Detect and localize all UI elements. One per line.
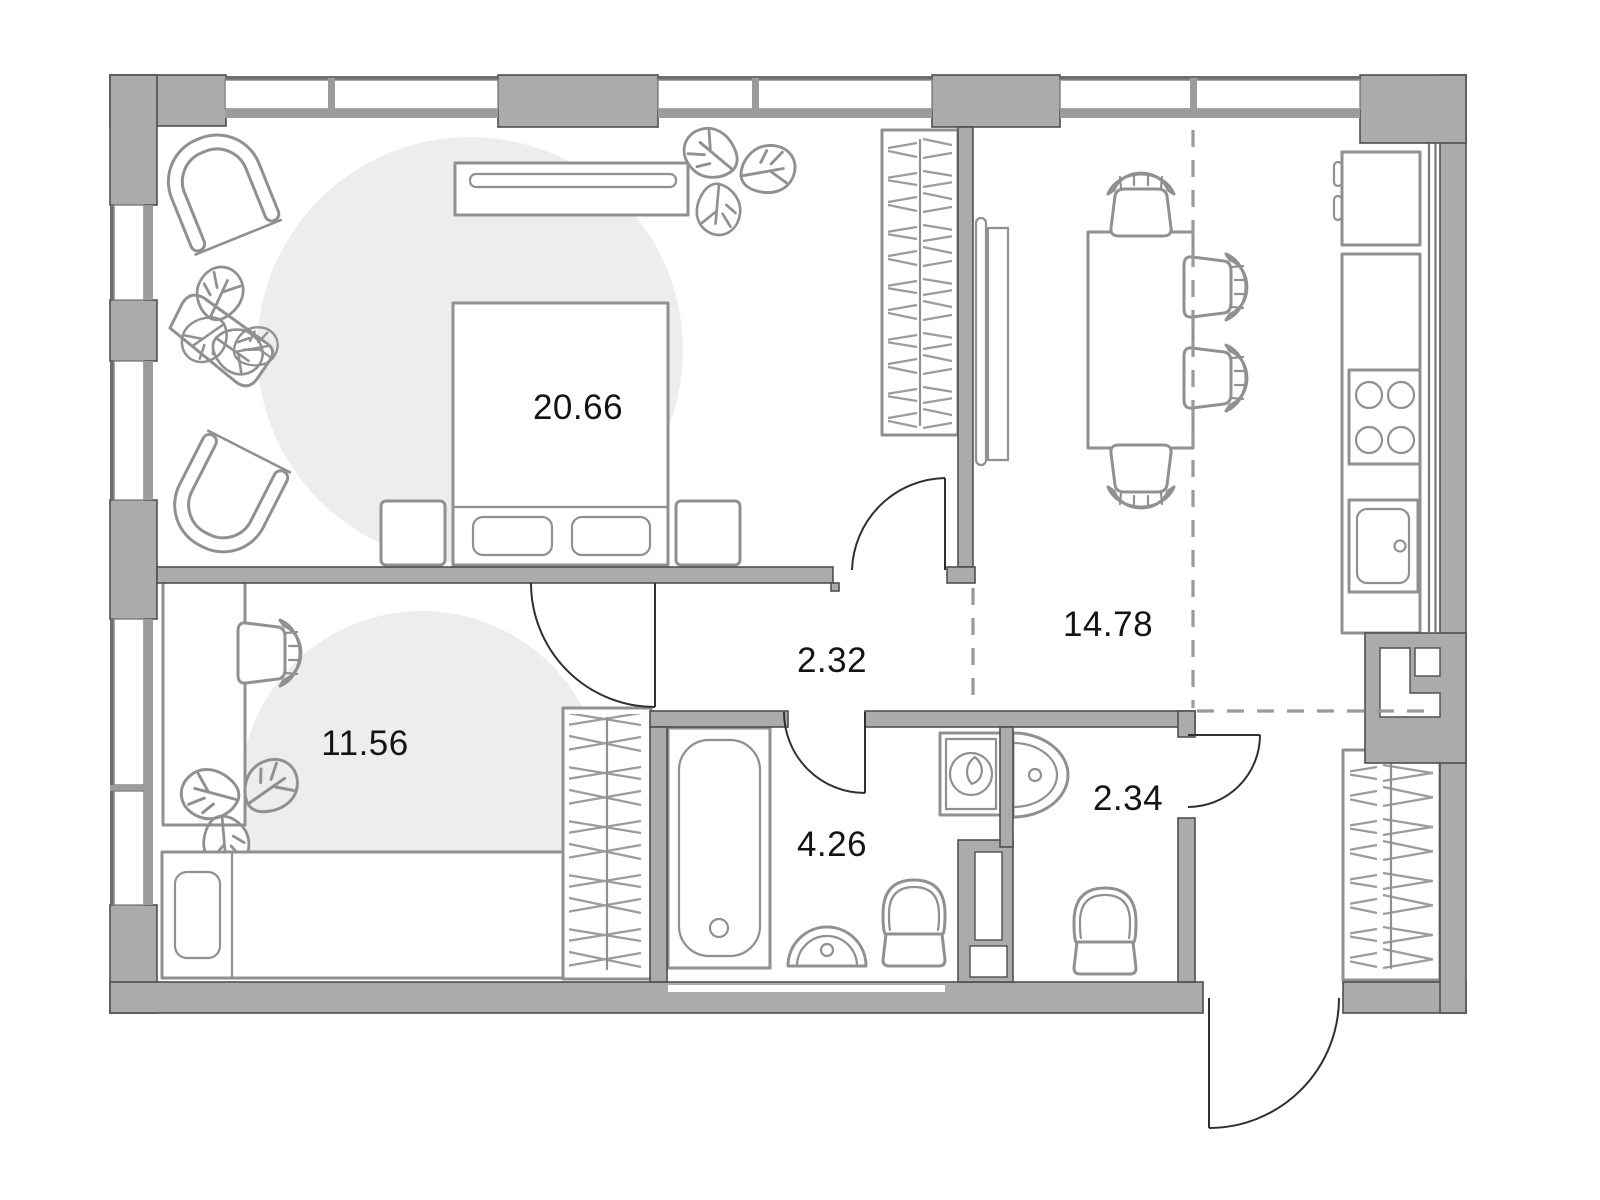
armchair-top-icon — [157, 128, 281, 255]
nightstand-left-icon — [381, 501, 445, 565]
toilet-room-toilet-icon — [1074, 888, 1136, 974]
entrance-door — [1209, 998, 1339, 1128]
desk-chair-icon — [238, 620, 301, 686]
desk-icon — [163, 580, 245, 825]
room-area-label-toilet: 2.34 — [1093, 779, 1163, 819]
bedroom-door — [852, 478, 945, 570]
fridge-icon — [1334, 152, 1420, 245]
bathtub-icon — [668, 728, 770, 968]
dining-chair-top-icon — [1108, 173, 1174, 236]
room-area-label-bedroom: 20.66 — [533, 388, 623, 428]
second-room-wardrobe-icon — [563, 708, 651, 979]
tv-console-icon — [455, 163, 688, 215]
room-area-label-bathroom: 4.26 — [797, 825, 867, 865]
plant-bedroom-right-icon — [677, 120, 800, 243]
hob-icon — [1349, 370, 1420, 464]
room-area-label-kitchen-living: 14.78 — [1063, 605, 1153, 645]
single-bed-icon — [162, 852, 575, 978]
nightstand-right-icon — [676, 501, 740, 565]
entrance-wardrobe-icon — [1343, 750, 1440, 980]
kitchen-tv-icon — [976, 218, 1008, 465]
bathroom-door — [784, 712, 865, 793]
washing-machine-icon — [940, 733, 1002, 815]
bathroom-sink-icon — [788, 927, 866, 966]
room-area-label-hallway: 2.32 — [797, 641, 867, 681]
floor-plan: 20.66 11.56 2.32 14.78 4.26 2.34 — [0, 0, 1600, 1200]
kitchen-sink-icon — [1349, 500, 1418, 592]
kitchen-wall-line — [1429, 122, 1436, 632]
dining-table-icon — [1088, 232, 1193, 448]
bedroom-wardrobe-icon — [882, 130, 958, 435]
room-area-label-second-room: 11.56 — [321, 724, 409, 764]
floor-plan-canvas — [0, 0, 1600, 1200]
bathroom-toilet-icon — [883, 880, 945, 966]
toilet-door — [1188, 735, 1260, 807]
double-bed-icon — [453, 303, 668, 565]
toilet-room-sink-icon — [1013, 733, 1068, 817]
dining-chair-bottom-icon — [1108, 445, 1174, 508]
armchair-bottom-icon — [162, 430, 291, 561]
